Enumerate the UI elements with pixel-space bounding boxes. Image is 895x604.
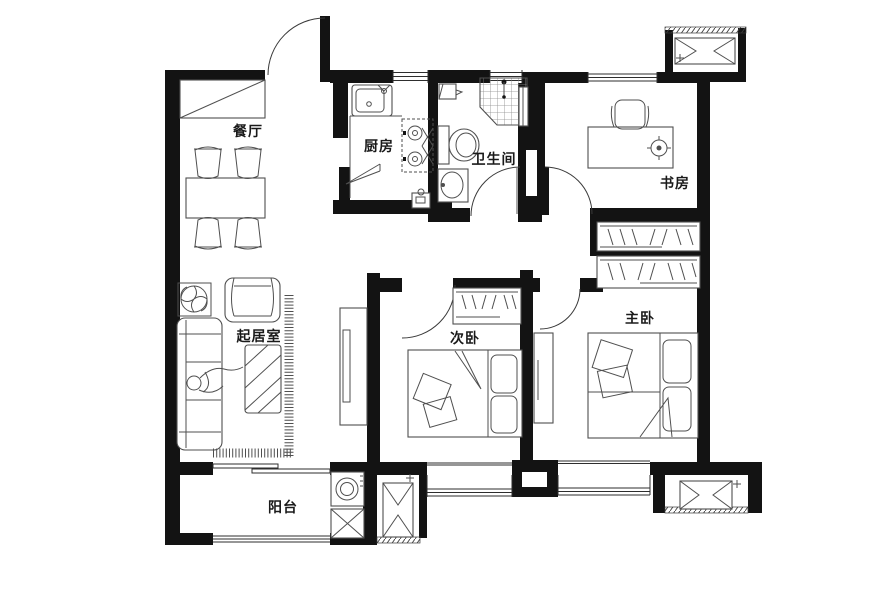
towel-shelf (519, 87, 528, 126)
secondary-bedroom-bay-window (427, 463, 512, 497)
ac-platform-bottom-right (665, 480, 748, 513)
master-bedroom-door (540, 289, 580, 329)
entrance-door (268, 18, 328, 75)
duct-shaft (512, 460, 558, 497)
kitchen-window (393, 70, 428, 83)
study-desk (588, 127, 673, 168)
study-chair (611, 100, 648, 129)
potted-plant (178, 283, 211, 316)
room-label-bathroom: 卫生间 (472, 151, 517, 167)
room-label-secondary-bedroom: 次卧 (450, 330, 480, 346)
floor-plan: 餐厅 厨房 卫生间 书房 起居室 次卧 主卧 阳台 (0, 0, 895, 604)
secondary-bedroom-door (402, 285, 455, 338)
balcony-window (213, 535, 330, 543)
balcony-sliding-door (213, 462, 330, 475)
ac-platform-top-right (665, 27, 746, 64)
floor-plan-drawing: 餐厅 厨房 卫生间 书房 起居室 次卧 主卧 阳台 (0, 0, 895, 604)
room-label-living: 起居室 (236, 328, 282, 344)
sparkle-icon (406, 474, 414, 482)
storage-cabinet (331, 509, 364, 538)
washing-machine (331, 472, 364, 506)
gas-meter (412, 189, 430, 208)
sofa (177, 318, 222, 450)
armchair (225, 278, 280, 322)
room-label-dining: 餐厅 (232, 123, 263, 139)
kitchen-counter (350, 116, 402, 198)
entry-cabinet (180, 80, 265, 118)
ac-platform-bottom-left (377, 474, 420, 543)
bathroom-door (471, 167, 520, 216)
toilet-paper-holder (439, 84, 462, 99)
room-label-kitchen: 厨房 (364, 138, 394, 154)
master-bed (588, 333, 698, 438)
sparkle-icon (733, 480, 741, 488)
master-bedroom-bay-window (558, 461, 650, 495)
pipe-shaft-notch (526, 150, 537, 196)
kitchen-sink (352, 85, 392, 116)
study-door (541, 167, 592, 215)
study-window (588, 72, 657, 83)
secondary-bed (408, 350, 522, 437)
secondary-wardrobe (453, 288, 521, 324)
kitchen-door (346, 164, 380, 184)
coffee-table (245, 345, 281, 413)
room-label-master-bedroom: 主卧 (625, 310, 655, 326)
room-label-balcony: 阳台 (268, 499, 298, 515)
tv-cabinet (340, 308, 367, 425)
room-label-study: 书房 (660, 175, 690, 191)
dining-table (186, 147, 265, 249)
master-dresser (534, 333, 553, 423)
bathroom-sink (438, 169, 468, 202)
